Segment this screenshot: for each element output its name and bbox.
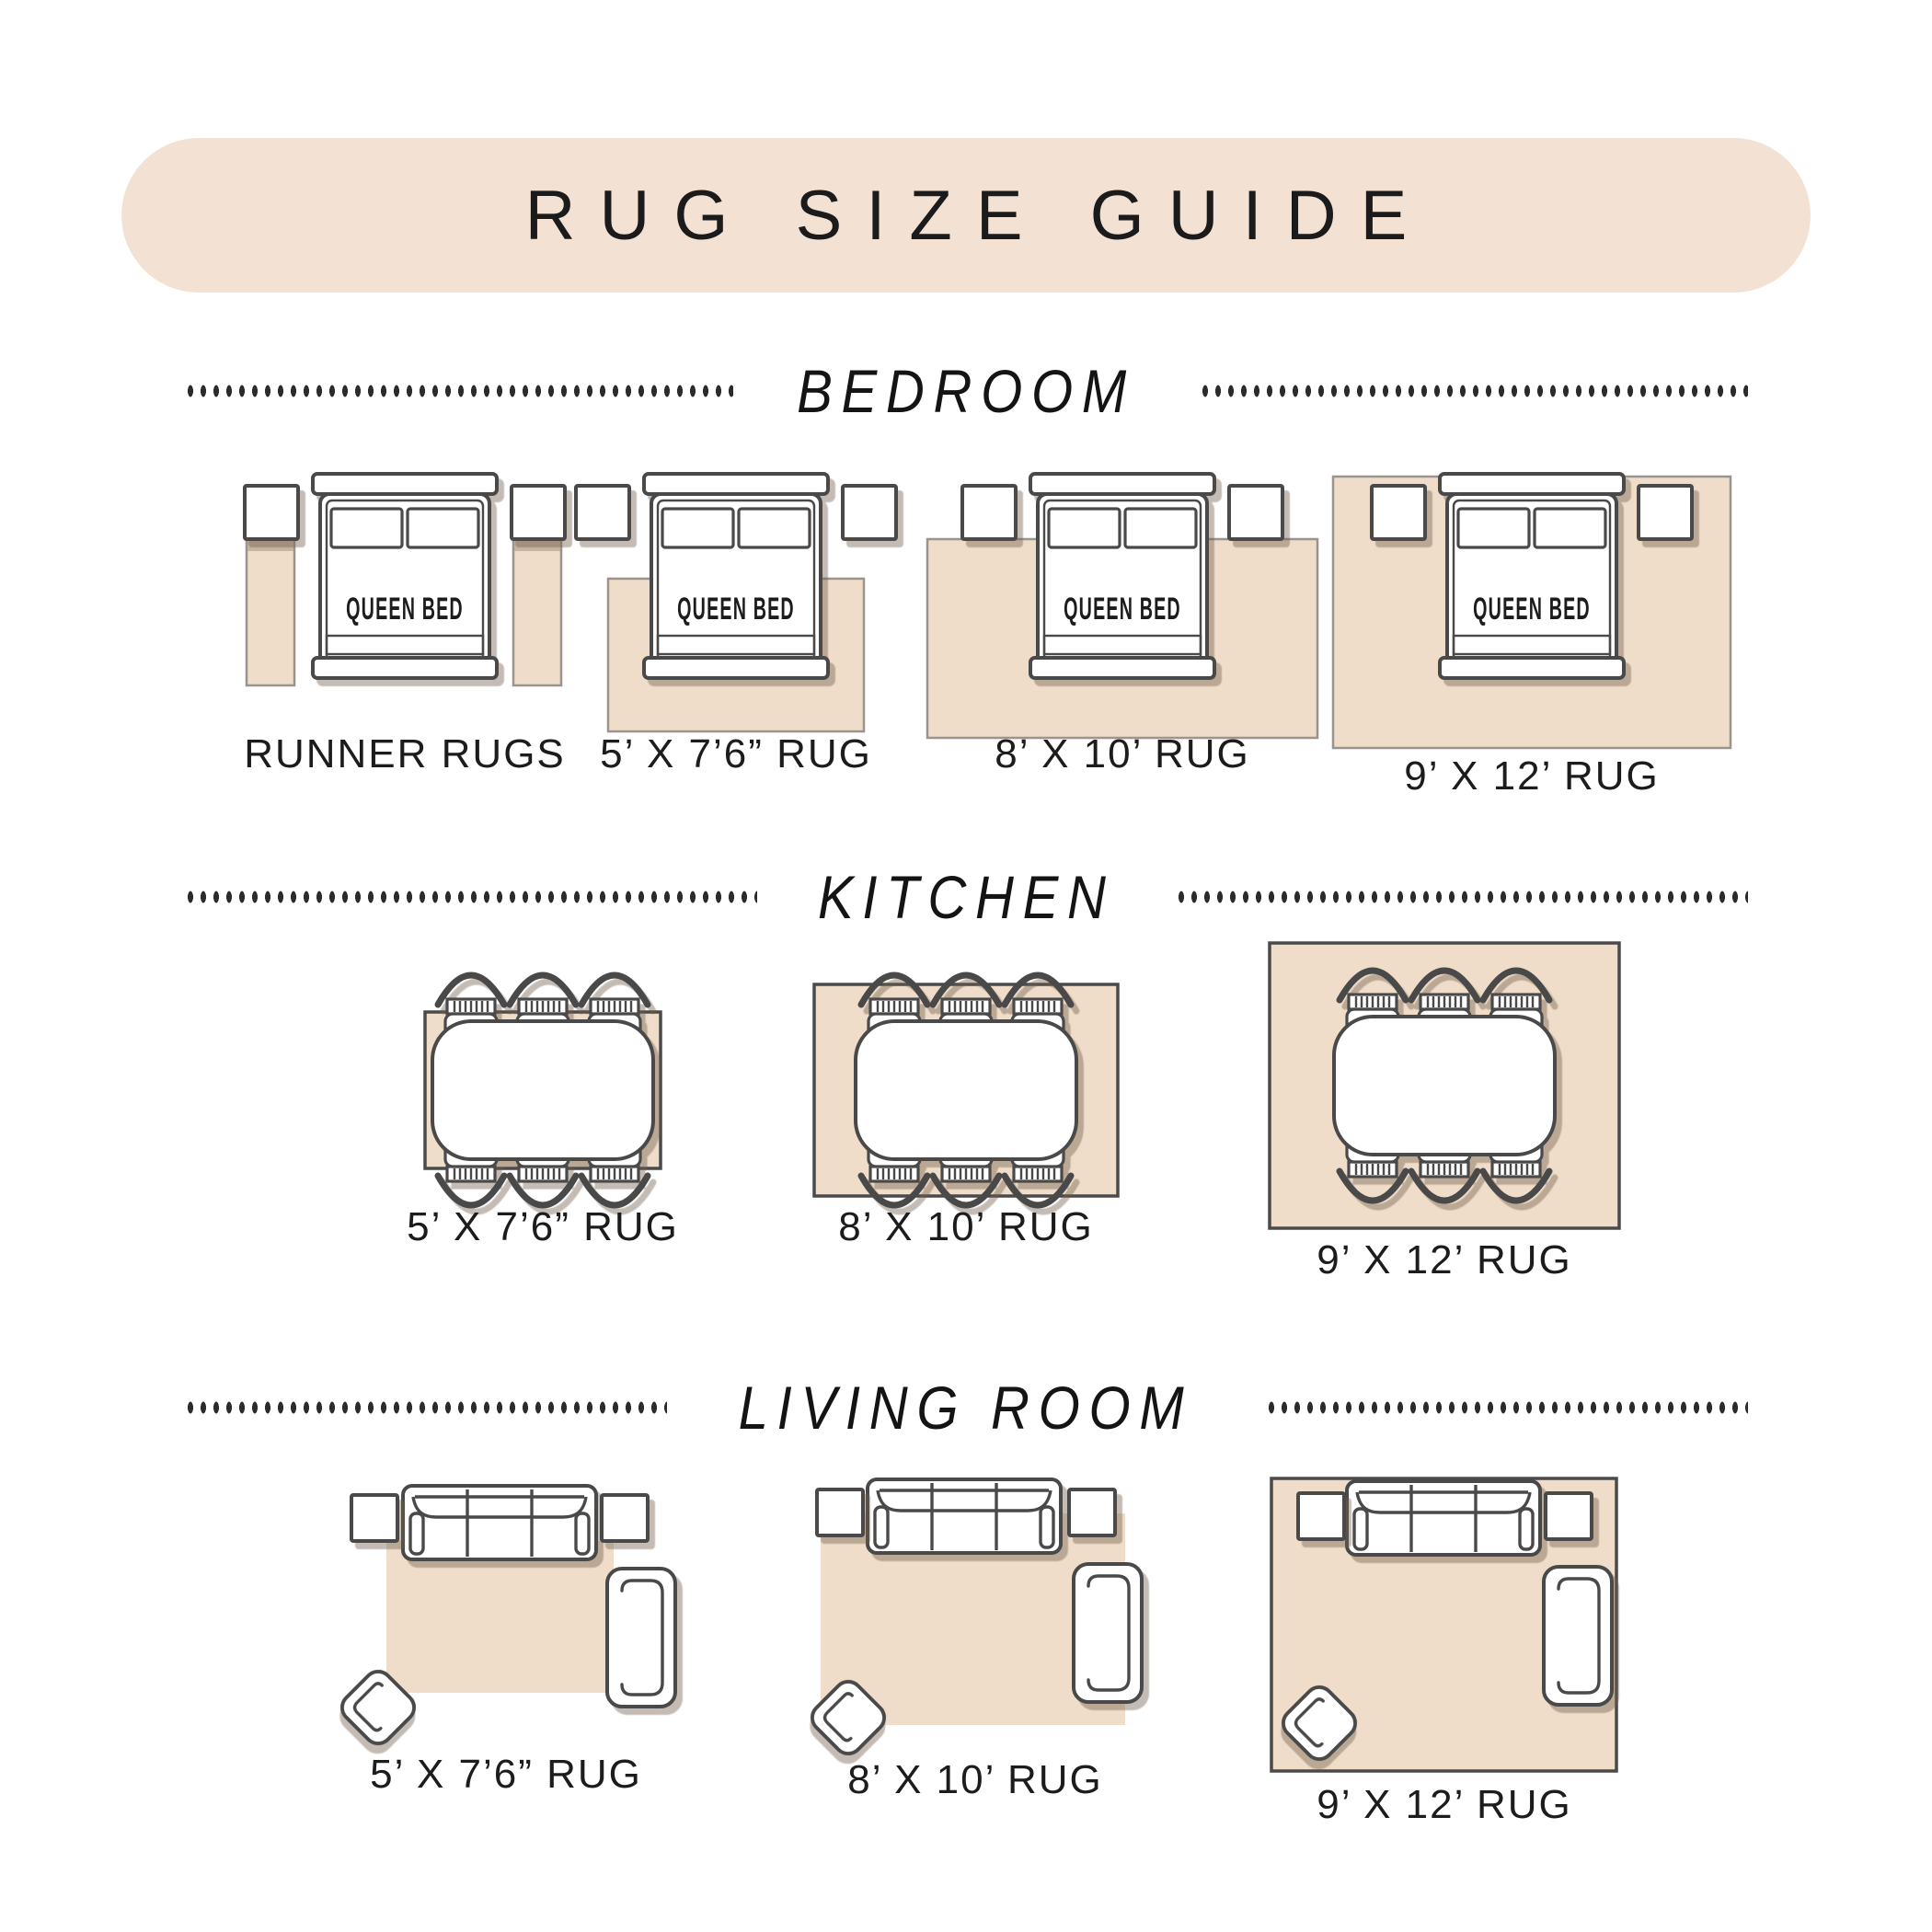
diagram-label: 8’ X 10’ RUG [764, 1760, 1187, 1800]
diagram-label: 8’ X 10’ RUG [754, 1207, 1178, 1248]
section-header-living-room: LIVING ROOM [184, 1374, 1748, 1441]
diagram-label: 8’ X 10’ RUG [920, 734, 1325, 775]
section-header-bedroom: BEDROOM [184, 358, 1748, 424]
queen-bed [1440, 474, 1624, 678]
dotted-divider [1175, 891, 1748, 903]
side-table [1298, 1493, 1344, 1539]
section-header-kitchen: KITCHEN [184, 864, 1748, 930]
chaise [1544, 1567, 1612, 1705]
header-banner: RUG SIZE GUIDE [121, 138, 1811, 293]
bedroom-diagram-5x76 [534, 460, 938, 773]
nightstand [1372, 486, 1425, 539]
side-table [1069, 1489, 1115, 1535]
chaise [607, 1569, 675, 1707]
diagram-label: 5’ X 7’6” RUG [331, 1207, 754, 1248]
nightstand [576, 486, 629, 539]
diagram-label: 9’ X 12’ RUG [1329, 756, 1734, 797]
dining-set [1334, 971, 1555, 1201]
dining-set [856, 975, 1076, 1205]
section-title-living-room: LIVING ROOM [739, 1377, 1193, 1438]
side-table [817, 1489, 863, 1535]
sofa [403, 1486, 596, 1559]
dotted-divider [1199, 385, 1748, 397]
sofa [1347, 1481, 1540, 1555]
bedroom-diagram-9x12 [1329, 460, 1734, 773]
diagram-label: 9’ X 12’ RUG [1233, 1240, 1656, 1281]
runner-rug-left [247, 529, 294, 685]
page-title: RUG SIZE GUIDE [501, 176, 1432, 256]
queen-bed [313, 474, 497, 678]
side-table [1546, 1493, 1592, 1539]
sofa [868, 1479, 1061, 1553]
nightstand [962, 486, 1016, 539]
dining-set [432, 975, 653, 1205]
section-title-bedroom: BEDROOM [797, 361, 1135, 421]
rug [386, 1541, 614, 1693]
nightstand [245, 486, 298, 539]
queen-bed [1030, 474, 1214, 678]
chaise [1074, 1564, 1142, 1702]
dotted-divider [184, 891, 757, 903]
diagram-label: 5’ X 7’6” RUG [534, 734, 938, 775]
queen-bed [644, 474, 828, 678]
diagram-label: 9’ X 12’ RUG [1233, 1785, 1656, 1825]
diagram-label: 5’ X 7’6” RUG [294, 1754, 718, 1795]
kitchen-diagram-9x12 [1233, 925, 1656, 1288]
side-table [351, 1495, 397, 1541]
dotted-divider [1265, 1401, 1748, 1414]
bedroom-diagram-8x10 [920, 460, 1325, 773]
rug-size-guide-infographic: QUEEN BED [0, 0, 1932, 1932]
dotted-divider [184, 1401, 667, 1414]
dotted-divider [184, 385, 733, 397]
nightstand [1639, 486, 1692, 539]
section-title-kitchen: KITCHEN [818, 867, 1115, 927]
nightstand [843, 486, 896, 539]
side-table [602, 1495, 648, 1541]
nightstand [1229, 486, 1282, 539]
